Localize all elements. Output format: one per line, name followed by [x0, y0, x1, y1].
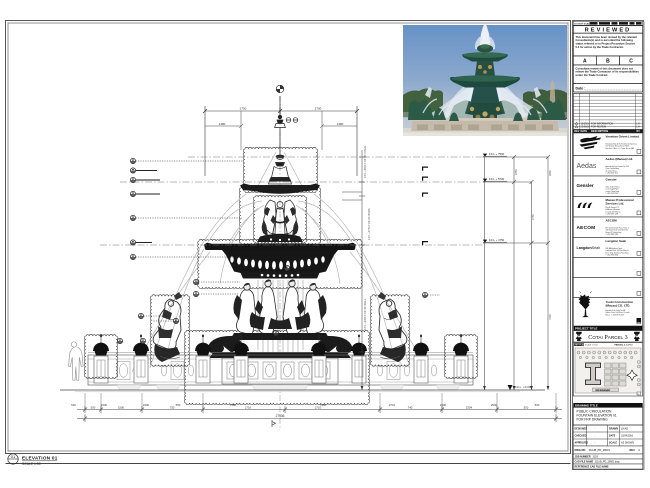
svg-text:Date :: Date :	[576, 87, 586, 91]
svg-text:Aedas: Aedas	[577, 163, 597, 170]
svg-text:7500: 7500	[548, 314, 552, 320]
svg-text:2300: 2300	[440, 403, 447, 407]
svg-text:status referred to in Projec: status referred to in Project Procedure …	[576, 42, 636, 46]
svg-text:SITE BOUNDARY: SITE BOUNDARY	[596, 389, 611, 392]
svg-text:7460: 7460	[320, 403, 327, 407]
svg-text:AS SHOWN: AS SHOWN	[621, 442, 634, 445]
svg-text:Venetian Orient Limited: Venetian Orient Limited	[606, 135, 640, 139]
svg-text:FOR REVIEW: FOR REVIEW	[591, 126, 607, 129]
svg-text:DESIGNED: DESIGNED	[575, 428, 588, 431]
svg-text:REV: REV	[574, 130, 579, 133]
svg-text:LH: LH	[637, 126, 640, 129]
svg-text:311UB_PD_28001: 311UB_PD_28001	[589, 448, 611, 452]
svg-text:2700: 2700	[315, 107, 322, 111]
svg-text:A: A	[583, 59, 587, 65]
svg-text:CAD FILE NAME: CAD FILE NAME	[575, 461, 594, 464]
svg-text:22/06/16: 22/06/16	[581, 126, 591, 129]
svg-text:Macau T +853 2878 1823: Macau T +853 2878 1823	[606, 314, 624, 316]
svg-text:Rua de Xangai 175: Rua de Xangai 175	[606, 207, 619, 209]
svg-text:Consultants(s) and is accorded: Consultants(s) and is accorded the follo…	[576, 38, 634, 42]
svg-text:REFERENCE CAD FILE NAME: REFERENCE CAD FILE NAME	[575, 466, 610, 469]
svg-text:LH/AD: LH/AD	[621, 428, 628, 431]
svg-text:REV: REV	[630, 448, 636, 452]
svg-text:T +852 2891 0305: T +852 2891 0305	[606, 234, 619, 236]
svg-text:500: 500	[524, 405, 529, 409]
svg-text:JOB NUMBER: JOB NUMBER	[575, 456, 591, 459]
svg-text:F.F.L + 7500: F.F.L + 7500	[489, 152, 505, 156]
svg-text:CHECKED: CHECKED	[575, 435, 587, 438]
svg-text:AECOM: AECOM	[577, 225, 596, 231]
svg-text:B: B	[606, 59, 610, 65]
svg-text:relieve the Trade Contractor o: relieve the Trade Contractor of its resp…	[576, 70, 640, 74]
svg-text:COTAI PARCEL 3: COTAI PARCEL 3	[588, 334, 628, 341]
svg-text:4750: 4750	[531, 214, 535, 220]
svg-text:F.F.L + 5700: F.F.L + 5700	[489, 177, 505, 181]
svg-text:F.F.L. +0.00: F.F.L. +0.00	[515, 385, 531, 389]
svg-text:PROJECT TITLE: PROJECT TITLE	[575, 327, 598, 331]
svg-text:500: 500	[535, 403, 540, 407]
svg-text:2800: 2800	[548, 170, 552, 176]
svg-text:under the Trade Contract.: under the Trade Contract.	[576, 73, 609, 77]
svg-text:F.P.L +4750 TOP OF BOWL: F.P.L +4750 TOP OF BOWL	[367, 207, 371, 240]
svg-text:Kwun Tong, Kowloon, Hong Kong: Kwun Tong, Kowloon, Hong Kong	[606, 252, 629, 254]
svg-text:311UB_PD_28001.dwg: 311UB_PD_28001.dwg	[595, 461, 620, 464]
svg-text:Gensler: Gensler	[606, 178, 618, 182]
svg-text:ELEVATION 01: ELEVATION 01	[22, 456, 58, 461]
svg-text:3103: 3103	[593, 456, 599, 459]
svg-text:FOR FRP DRAWING: FOR FRP DRAWING	[577, 418, 609, 422]
svg-text:T +853 2875 1228: T +853 2875 1228	[606, 214, 619, 216]
svg-text:SCALE: SCALE	[609, 442, 618, 445]
svg-text:2304: 2304	[466, 405, 473, 409]
svg-text:LangdonSeah: LangdonSeah	[577, 246, 601, 250]
svg-text:1500: 1500	[118, 405, 125, 409]
svg-text:SCALE 1:50: SCALE 1:50	[22, 462, 41, 466]
svg-text:2700: 2700	[240, 107, 247, 111]
svg-text:APPROVED: APPROVED	[575, 442, 589, 445]
svg-text:DATE: DATE	[581, 130, 588, 133]
svg-text:C: C	[629, 59, 633, 65]
svg-text:1850: 1850	[514, 169, 518, 175]
svg-text:1480: 1480	[219, 122, 226, 126]
svg-text:500: 500	[91, 405, 96, 409]
svg-text:This document has been revised: This document has been revised by the re…	[576, 35, 637, 39]
svg-text:550: 550	[176, 403, 181, 407]
svg-text:Consultant review of this docu: Consultant review of this document does …	[576, 66, 634, 70]
svg-text:1500: 1500	[101, 403, 108, 407]
svg-text:DO NOT SCALE: DO NOT SCALE	[575, 22, 592, 25]
svg-text:Langdon Seah: Langdon Seah	[606, 239, 627, 243]
svg-text:Services Ltd.: Services Ltd.	[606, 201, 625, 205]
svg-text:PARCEL 1, LOT 2: PARCEL 1, LOT 2	[615, 344, 634, 347]
svg-text:F.P.L +5650 TOP OF FINIAL: F.P.L +5650 TOP OF FINIAL	[363, 145, 367, 178]
svg-text:1480: 1480	[337, 122, 344, 126]
svg-text:15/04/2016: 15/04/2016	[621, 435, 634, 438]
svg-text:AECOM: AECOM	[606, 219, 618, 223]
svg-text:27536: 27536	[276, 414, 285, 418]
svg-text:DRAWN: DRAWN	[609, 428, 618, 431]
svg-text:2500: 2500	[491, 403, 498, 407]
svg-text:F.P.L +2350 TOP OF WALL: F.P.L +2350 TOP OF WALL	[363, 298, 367, 330]
svg-text:T +852 2501 0500: T +852 2501 0500	[606, 193, 619, 195]
svg-text:01: 01	[11, 454, 16, 459]
svg-text:2716: 2716	[245, 405, 252, 409]
svg-text:740: 740	[408, 405, 413, 409]
svg-text:7460: 7460	[230, 403, 237, 407]
svg-text:2716: 2716	[389, 403, 396, 407]
svg-text:DATE: DATE	[609, 435, 616, 438]
svg-text:500: 500	[71, 403, 76, 407]
svg-text:Aedas (Macau) Ltd.: Aedas (Macau) Ltd.	[606, 157, 634, 161]
svg-text:SCALE 1:7500: SCALE 1:7500	[585, 344, 598, 347]
svg-text:2300: 2300	[143, 403, 150, 407]
svg-text:(Macau) CO. LTD.: (Macau) CO. LTD.	[606, 304, 631, 308]
svg-text:T +852 2830 3500: T +852 2830 3500	[606, 255, 619, 257]
svg-text:DESCRIPTION: DESCRIPTION	[591, 130, 608, 133]
svg-text:5.4 for action by the Trade Co: 5.4 for action by the Trade Contractor.	[576, 45, 625, 49]
svg-text:750: 750	[170, 405, 175, 409]
svg-text:F.F.L + 4750: F.F.L + 4750	[489, 238, 505, 242]
svg-text:China Law Building: China Law Building	[606, 168, 619, 170]
svg-text:REVIEWED: REVIEWED	[585, 28, 632, 34]
svg-text:Gensler: Gensler	[577, 183, 594, 188]
svg-text:T +853 2833 1113: T +853 2833 1113	[606, 173, 618, 175]
svg-text:BY: BY	[637, 130, 641, 133]
svg-text:KEY PLAN: KEY PLAN	[575, 344, 586, 347]
svg-text:DWG NO: DWG NO	[575, 448, 586, 452]
svg-text:DRAWING TITLE: DRAWING TITLE	[575, 403, 598, 407]
